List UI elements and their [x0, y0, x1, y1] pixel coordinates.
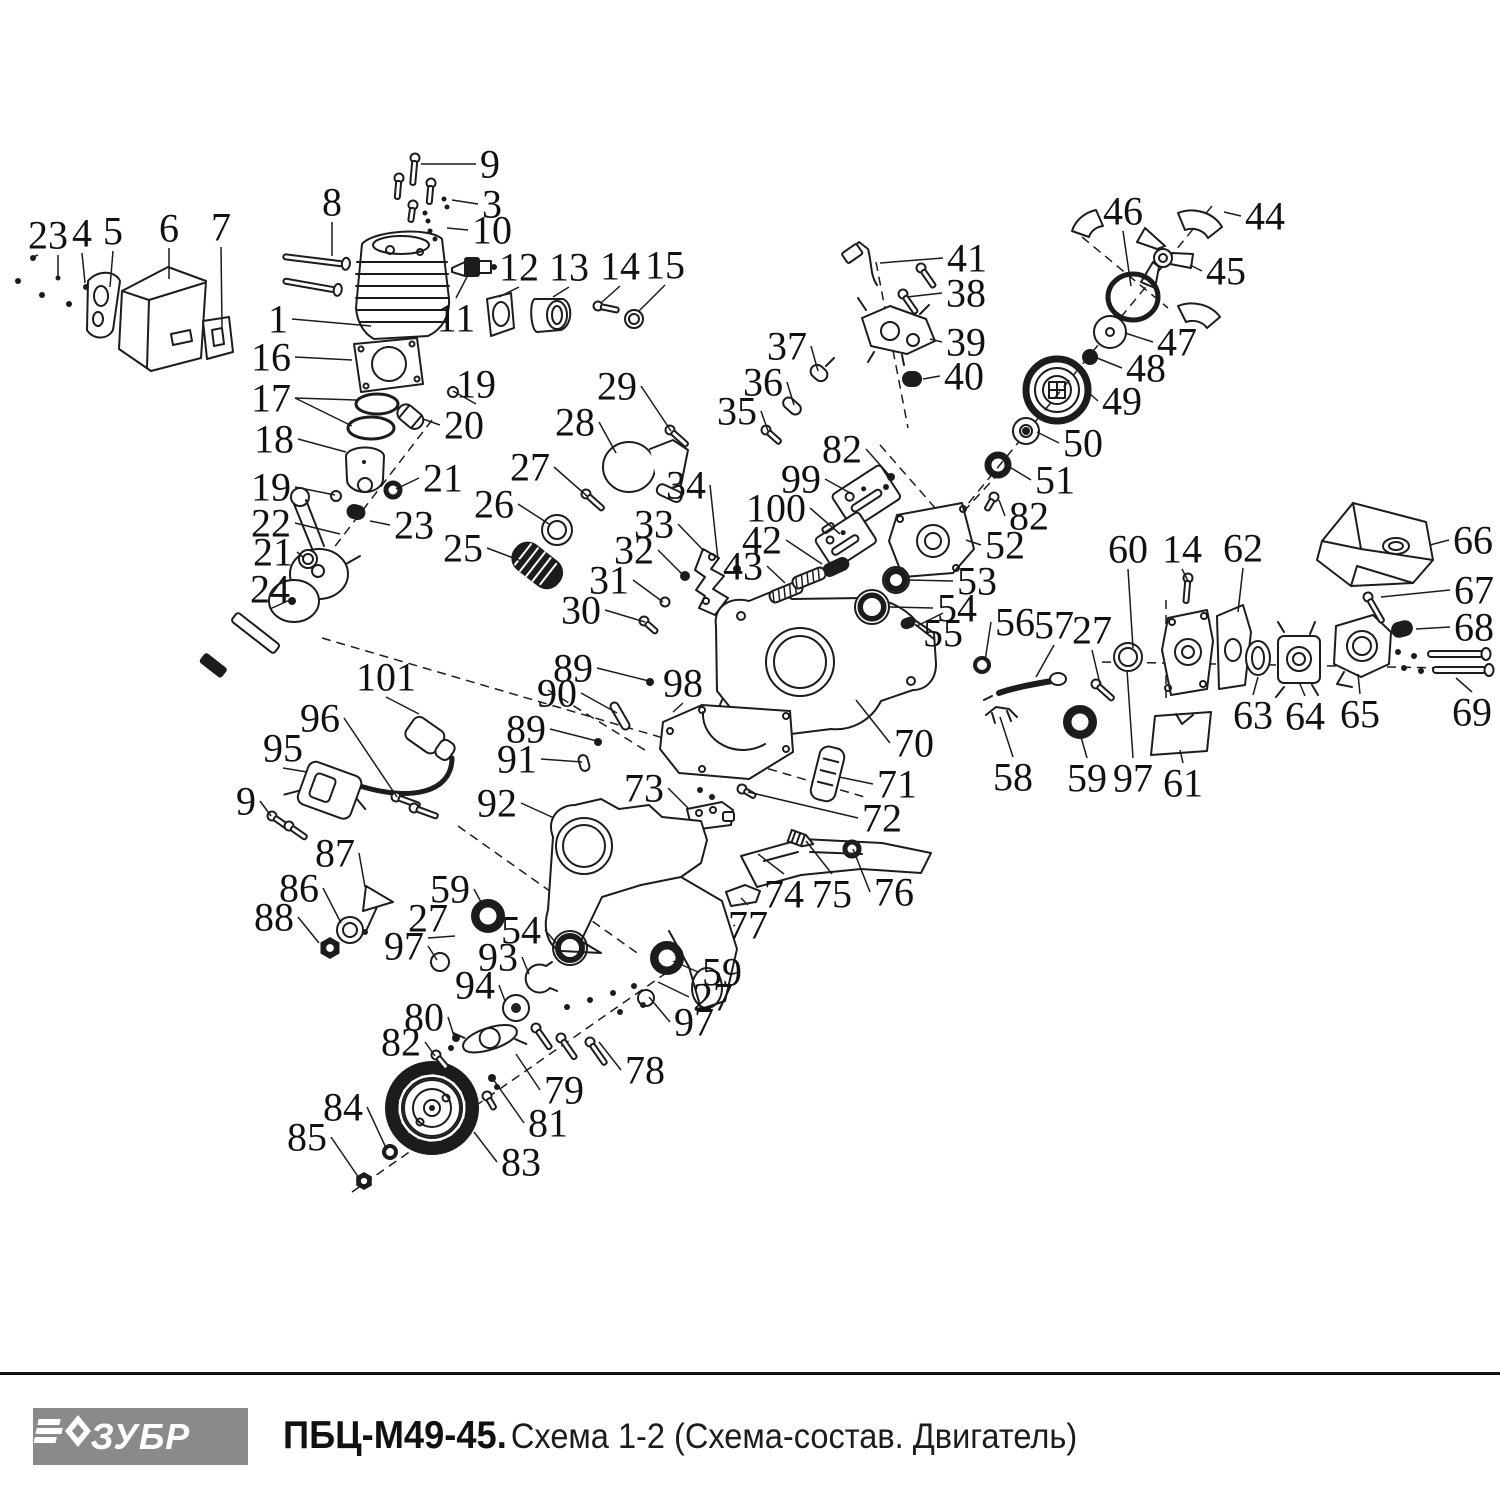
part-label: 77	[728, 903, 768, 948]
part-label: 85	[287, 1115, 327, 1160]
fastener	[709, 794, 715, 800]
screw-fastener	[408, 802, 439, 821]
part-label: 9	[236, 779, 256, 824]
leader-line	[295, 357, 352, 360]
leader-line	[890, 607, 933, 608]
part-label: 62	[1223, 526, 1263, 571]
part-label: 4	[72, 211, 92, 256]
leader-line	[710, 485, 718, 560]
leader-line	[678, 524, 704, 551]
clutch-spring-part	[1108, 274, 1158, 320]
screw-fastener	[983, 491, 1001, 512]
leader-line	[323, 888, 341, 923]
part-label: 97	[674, 1000, 714, 1045]
part-label: 55	[923, 611, 963, 656]
fastener	[39, 292, 45, 298]
filter-base-part	[1334, 615, 1391, 687]
fastener	[638, 990, 654, 1006]
leader-line	[1430, 540, 1449, 545]
leader-line	[554, 467, 587, 496]
fastener	[433, 237, 438, 242]
sheet-subtitle: Схема 1-2 (Схема-состав. Двигатель)	[511, 1417, 1077, 1456]
part-label: 25	[443, 526, 483, 571]
carburetor-part	[1276, 622, 1320, 697]
leader-line	[370, 521, 390, 525]
part-label: 64	[1285, 694, 1325, 739]
leader-line	[82, 253, 85, 283]
screw-fastener	[283, 820, 309, 842]
part-label: 26	[474, 482, 514, 527]
part-label: 2	[28, 213, 48, 258]
muffler-gasket-part	[87, 273, 120, 338]
part-label: 82	[381, 1020, 421, 1065]
leader-line	[658, 550, 683, 575]
part-label: 63	[1233, 693, 1273, 738]
part-label: 27	[1072, 608, 1112, 653]
fastener	[448, 1045, 454, 1051]
spring-fastener	[791, 566, 827, 590]
part-label: 61	[1163, 761, 1203, 806]
leader-line	[1125, 333, 1153, 342]
part-label: 24	[250, 567, 290, 612]
part-label: 14	[600, 244, 640, 289]
fastener	[1411, 653, 1417, 659]
leader-line	[907, 293, 942, 297]
throttle-assembly-part	[826, 298, 935, 366]
part-label: 14	[1162, 527, 1202, 572]
part-label: 69	[1452, 690, 1492, 735]
leader-line	[839, 777, 873, 784]
leader-line	[599, 422, 616, 453]
leader-line	[499, 985, 505, 1001]
dashed-line	[1102, 662, 1448, 668]
part-label: 92	[477, 781, 517, 826]
leader-line	[1224, 212, 1241, 216]
screw-fastener	[481, 1090, 499, 1111]
screw-fastener	[760, 424, 783, 446]
leader-line	[1008, 466, 1031, 480]
leader-line	[1036, 645, 1054, 677]
part-label: 29	[597, 364, 637, 409]
screw-fastener	[530, 1022, 554, 1051]
fastener	[988, 455, 1008, 475]
leader-line	[1000, 717, 1013, 757]
carb-gasket-part	[1217, 605, 1251, 689]
part-label: 8	[322, 180, 342, 225]
part-label: 59	[1067, 756, 1107, 801]
fastener	[609, 701, 631, 731]
leader-line	[331, 1137, 359, 1178]
fastener	[1391, 620, 1414, 639]
part-label: 3	[48, 213, 68, 258]
leader-line	[638, 285, 665, 312]
leader-line	[518, 504, 549, 524]
leader-line	[425, 1042, 435, 1056]
leader-line	[1097, 358, 1122, 368]
screw-fastener	[915, 262, 938, 290]
leader-line	[1128, 569, 1133, 648]
zubr-logo-icon	[33, 1408, 95, 1454]
part-label: 13	[549, 245, 589, 290]
fastener	[1068, 710, 1092, 734]
fastener	[346, 504, 366, 521]
part-label: 91	[497, 737, 537, 782]
leader-line	[541, 759, 582, 762]
screw-fastener	[580, 488, 606, 513]
part-label: 60	[1108, 527, 1148, 572]
leader-line	[359, 853, 365, 887]
part-label: 34	[666, 463, 706, 508]
ignition-lead-part	[841, 242, 877, 285]
fastener	[428, 229, 433, 234]
cylinder-part	[356, 232, 449, 339]
part-label: 72	[862, 796, 902, 841]
leader-line	[748, 792, 858, 818]
brand-logo-text: ЗУБР	[91, 1416, 191, 1458]
fastener	[1418, 668, 1424, 674]
carb-spacer-ring-part	[1246, 641, 1270, 675]
part-label: 19	[456, 362, 496, 407]
fastener	[445, 205, 450, 210]
leader-line	[521, 803, 554, 818]
brand-logo: ЗУБР	[33, 1408, 248, 1465]
leader-line	[1416, 627, 1450, 629]
plug-wire-part	[360, 714, 459, 793]
fastener	[883, 484, 889, 490]
fastener	[386, 483, 400, 497]
leader-line	[452, 200, 478, 204]
flywheel-part	[386, 1062, 478, 1154]
part-label: 27	[510, 445, 550, 490]
part-label: 16	[251, 335, 291, 380]
leader-line	[605, 610, 645, 622]
part-label: 101	[356, 655, 416, 700]
leader-line	[641, 386, 671, 431]
leader-line	[668, 788, 688, 808]
fastener	[542, 515, 572, 545]
leader-line	[295, 398, 356, 400]
leader-line	[810, 508, 840, 534]
part-label: 65	[1340, 692, 1380, 737]
part-label: 95	[263, 726, 303, 771]
part-label: 74	[764, 872, 804, 917]
fastener	[594, 738, 602, 746]
fastener	[299, 550, 317, 568]
screw-fastener	[408, 153, 420, 185]
part-label: 12	[499, 245, 539, 290]
part-label: 30	[561, 588, 601, 633]
fastener	[423, 211, 428, 216]
leader-line	[386, 697, 419, 714]
leader-line	[447, 228, 468, 230]
fastener	[426, 219, 431, 224]
fastener	[903, 372, 921, 386]
part-label: 94	[455, 963, 495, 1008]
leader-line	[880, 258, 943, 263]
leader-line	[456, 273, 469, 298]
part-label: 15	[645, 243, 685, 288]
fastener	[337, 917, 363, 943]
leader-line	[767, 566, 785, 583]
fastener	[587, 997, 593, 1003]
fastener	[83, 284, 89, 290]
base-gasket-part	[354, 338, 423, 392]
leader-line	[550, 729, 597, 741]
exploded-diagram: 2345678931011112131415161719201819212223…	[0, 0, 1500, 1500]
part-label: 44	[1245, 194, 1285, 239]
muffler-part	[119, 267, 233, 371]
fastener	[15, 278, 21, 284]
part-label: 56	[995, 600, 1035, 645]
leader-line	[1037, 432, 1059, 443]
leader-line	[908, 580, 953, 581]
piston-rings-part	[348, 394, 398, 439]
leader-line	[295, 523, 340, 534]
leader-line	[999, 500, 1005, 516]
carb-bracket-part	[1162, 610, 1213, 695]
part-label: 73	[624, 766, 664, 811]
part-label: 83	[501, 1140, 541, 1185]
part-label: 76	[874, 870, 914, 915]
screw-fastener	[1090, 678, 1116, 703]
part-label: 45	[1206, 249, 1246, 294]
part-label: 9	[480, 142, 500, 187]
part-label: 5	[103, 209, 123, 254]
screw-fastener	[393, 173, 404, 199]
fastener	[66, 301, 72, 307]
fastener	[1022, 427, 1030, 435]
leader-line	[649, 997, 670, 1022]
part-label: 84	[323, 1085, 363, 1130]
part-label: 38	[946, 271, 986, 316]
circlip-part	[526, 962, 557, 993]
part-label: 57	[1034, 603, 1074, 648]
filter-cover-part	[1317, 503, 1433, 586]
fastener	[631, 983, 637, 989]
part-label: 96	[300, 696, 340, 741]
leader-line	[367, 1107, 387, 1150]
spark-plug-part	[452, 258, 497, 276]
leader-line	[601, 286, 620, 303]
leader-line	[633, 580, 663, 602]
leader-line	[448, 1017, 454, 1036]
piston-part	[346, 447, 384, 492]
fastener	[1094, 316, 1126, 348]
leader-line	[493, 1079, 524, 1123]
leader-line	[985, 622, 991, 661]
part-label: 23	[394, 503, 434, 548]
crankcase-gasket-part	[660, 705, 793, 779]
fastener	[1395, 649, 1401, 655]
screw-fastener	[406, 200, 418, 223]
part-label: 58	[993, 755, 1033, 800]
fastener	[578, 754, 591, 772]
exhaust-gasket-part	[487, 293, 514, 336]
chain-catcher-part	[809, 745, 846, 803]
filter-bolts-part	[1428, 648, 1494, 676]
part-label: 70	[894, 721, 934, 766]
fastener	[564, 1004, 570, 1010]
leader-line	[1127, 670, 1133, 758]
part-label: 7	[211, 205, 231, 250]
part-label: 97	[1113, 756, 1153, 801]
clutch-drum-part	[1026, 359, 1088, 421]
fastener	[1082, 349, 1098, 365]
part-label: 17	[251, 376, 291, 421]
leader-line	[298, 917, 319, 943]
part-label: 18	[254, 417, 294, 462]
fastener	[331, 491, 341, 501]
part-label: 49	[1102, 379, 1142, 424]
leader-line	[474, 1132, 497, 1162]
part-label: 88	[254, 895, 294, 940]
fastener	[887, 571, 905, 589]
leader-line	[474, 889, 482, 904]
leader-line	[597, 668, 649, 681]
fastener	[610, 990, 616, 996]
part-label: 43	[723, 544, 763, 589]
part-label: 82	[822, 427, 862, 472]
part-label: 21	[423, 456, 463, 501]
sheet-title: ПБЦ-М49-45. Схема 1-2 (Схема-состав. Дви…	[283, 1414, 1077, 1458]
leader-line	[295, 398, 352, 426]
leader-line	[516, 1054, 540, 1090]
fastener	[625, 310, 643, 328]
part-label: 37	[767, 324, 807, 369]
part-label: 11	[437, 296, 476, 341]
fastener	[697, 787, 703, 793]
screw-fastener	[425, 178, 436, 204]
part-label: 6	[159, 206, 179, 251]
leader-line	[923, 376, 940, 379]
leader-line	[260, 801, 271, 816]
leader-line	[1381, 590, 1450, 597]
fastener	[975, 658, 989, 672]
heat-plate-part	[1151, 712, 1211, 755]
screw-fastener	[736, 783, 757, 801]
part-label: 28	[555, 400, 595, 445]
fastener	[513, 1005, 519, 1011]
part-label: 97	[384, 924, 424, 969]
part-label: 20	[444, 403, 484, 448]
parts-diagram-page: 2345678931011112131415161719201819212223…	[0, 0, 1500, 1500]
leader-line	[658, 982, 689, 997]
part-label: 78	[625, 1048, 665, 1093]
leader-line	[522, 957, 529, 974]
fastener	[655, 946, 679, 970]
part-label: 75	[812, 872, 852, 917]
part-label: 98	[663, 661, 703, 706]
part-label: 87	[315, 831, 355, 876]
fastener	[442, 197, 447, 202]
leader-line	[298, 439, 346, 452]
part-label: 68	[1454, 605, 1494, 650]
part-label: 66	[1453, 518, 1493, 563]
fastener	[56, 276, 61, 281]
oil-hose-part	[984, 673, 1066, 700]
part-label: 40	[944, 354, 984, 399]
part-label: 100	[746, 486, 806, 531]
footer-divider	[0, 1372, 1500, 1375]
part-label: 46	[1103, 189, 1143, 234]
screw-fastener	[593, 301, 620, 315]
fastener	[1401, 665, 1407, 671]
model-code: ПБЦ-М49-45.	[283, 1414, 507, 1457]
intake-flange-part	[531, 299, 570, 332]
fastener	[476, 904, 500, 928]
screw-fastener	[638, 615, 660, 636]
cylinder-bolts-part	[283, 250, 351, 296]
fastener	[617, 1009, 623, 1015]
fastener	[646, 678, 654, 686]
leader-line	[221, 247, 222, 327]
